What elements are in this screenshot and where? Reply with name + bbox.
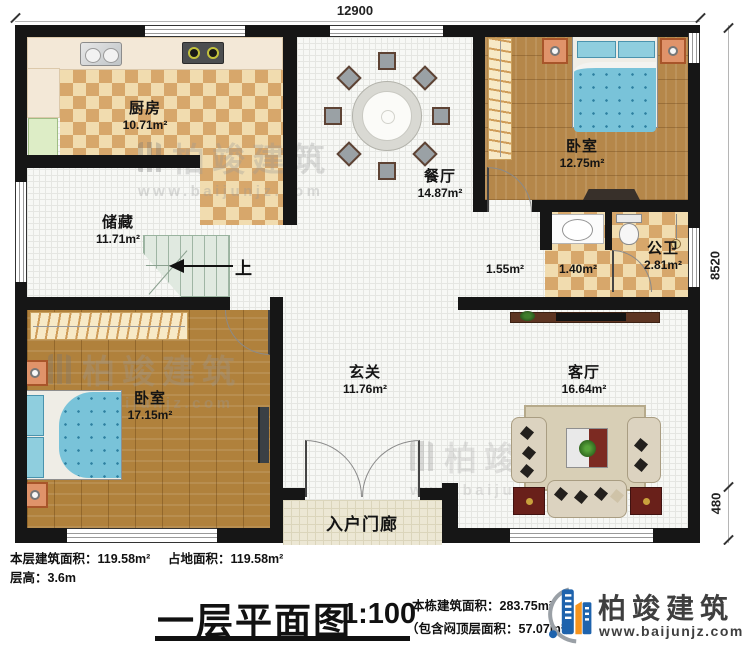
stove <box>182 42 224 64</box>
stairs-up-label: 上 <box>235 254 252 279</box>
coffee-table <box>566 428 608 468</box>
kitchen-dining-wall <box>283 25 297 225</box>
dining-table-center <box>381 110 395 124</box>
tv <box>258 407 269 463</box>
brand-name: 柏竣建筑 <box>598 587 734 627</box>
total-area-text: 本栋建筑面积：283.75m² <box>412 595 553 614</box>
room-label-bedroom-left: 卧室 17.15m² <box>112 390 188 422</box>
room-label-kitchen: 厨房 10.71m² <box>95 100 195 132</box>
kitchen-counter <box>27 37 283 70</box>
side-table-ornament <box>526 498 533 505</box>
wardrobe <box>488 38 512 160</box>
floor-plan: 柏竣建筑 www.baijunjz.com 柏竣建筑 www.baijunjz.… <box>0 0 750 545</box>
room-label-porch: 入户门廊 <box>302 515 422 535</box>
tv <box>556 313 626 321</box>
lamp <box>30 368 40 378</box>
bed <box>572 35 658 128</box>
dining-chair <box>378 52 396 70</box>
room-label-bathroom: 公卫 2.81m² <box>630 240 696 272</box>
washbasin <box>562 219 593 241</box>
pillow <box>26 395 44 436</box>
porch-pillar <box>442 483 458 543</box>
sink-bowl <box>85 48 101 63</box>
stairs-direction-line <box>183 265 233 267</box>
room-label-dining: 餐厅 14.87m² <box>400 168 480 200</box>
dimension-tick <box>695 13 706 24</box>
pillow <box>577 41 616 58</box>
area-label-lobby: 1.55m² <box>472 262 538 276</box>
dining-chair <box>324 107 342 125</box>
room-label-living: 客厅 16.64m² <box>548 364 620 396</box>
brand-logo: 柏竣建筑 www.baijunjz.com <box>545 583 745 649</box>
kitchen-sink <box>80 42 122 66</box>
nightstand <box>660 38 686 64</box>
window <box>67 528 217 543</box>
side-table <box>630 487 662 515</box>
dimension-label-right: 8520 <box>708 238 723 294</box>
plant <box>520 311 535 321</box>
sofa-left <box>511 417 547 483</box>
bedroom-right-bottom-wall <box>473 200 487 212</box>
lamp <box>30 490 40 500</box>
burner <box>207 47 219 59</box>
kitchen-bottom-wall <box>15 155 200 168</box>
dimension-label-porch: 480 <box>709 482 724 526</box>
wardrobe-rail <box>500 41 501 157</box>
brand-website: www.baijunjz.com <box>599 623 744 639</box>
room-label-hall: 玄关 11.76m² <box>328 364 402 396</box>
room-label-bedroom-right: 卧室 12.75m² <box>542 138 622 170</box>
wash-bath-wall <box>605 212 612 250</box>
window <box>688 33 700 63</box>
dimension-line-top <box>15 21 700 22</box>
footer: 本层建筑面积：119.58m² 占地面积：119.58m² 层高：3.6m 一层… <box>0 545 750 651</box>
burner <box>188 47 200 59</box>
dresser <box>583 189 640 200</box>
pillow <box>26 437 44 478</box>
dining-chair <box>432 107 450 125</box>
land-area-text: 占地面积：119.58m² <box>168 548 283 567</box>
sink-bowl <box>103 48 119 63</box>
lamp <box>668 46 678 56</box>
lamp <box>550 46 560 56</box>
entry-wall <box>420 488 442 500</box>
lobby-wash-wall <box>540 212 552 250</box>
area-label-wash: 1.40m² <box>545 262 611 276</box>
pillow <box>618 41 655 58</box>
wardrobe-rail <box>33 326 185 327</box>
shower-cord <box>676 214 677 240</box>
floor-area-text: 本层建筑面积：119.58m² <box>10 548 150 567</box>
window <box>15 182 27 282</box>
window <box>145 25 245 37</box>
kitchen-counter-left <box>27 68 60 118</box>
bed <box>20 390 122 480</box>
washbasin-counter <box>548 214 604 244</box>
window <box>330 25 443 37</box>
storage-bedroom-wall <box>15 297 230 310</box>
sofa-right <box>627 417 661 483</box>
wall-left <box>15 25 27 543</box>
entry-wall <box>283 488 305 500</box>
side-table <box>513 487 545 515</box>
toilet-tank <box>616 214 642 223</box>
dining-chair <box>378 162 396 180</box>
stairs-up-arrow-icon <box>169 259 184 273</box>
blanket <box>574 62 656 132</box>
dining-table <box>352 81 422 151</box>
bedroom-left-right-wall <box>270 297 283 543</box>
side-table-ornament <box>643 498 650 505</box>
sofa-main <box>547 480 627 518</box>
nightstand <box>542 38 568 64</box>
room-label-storage: 储藏 11.71m² <box>68 214 168 246</box>
bedroom-right-bottom-wall <box>532 200 688 212</box>
title-underline <box>155 636 410 641</box>
dimension-label-top: 12900 <box>320 3 390 18</box>
floor-height-text: 层高：3.6m <box>10 567 76 586</box>
brand-logo-icon <box>545 583 593 647</box>
plant <box>579 440 596 457</box>
fridge <box>28 118 58 156</box>
watermark-logo-icon <box>48 354 74 384</box>
window <box>510 528 653 543</box>
wardrobe <box>30 312 188 340</box>
living-top-wall <box>458 297 688 310</box>
dimension-line-right <box>728 25 729 543</box>
